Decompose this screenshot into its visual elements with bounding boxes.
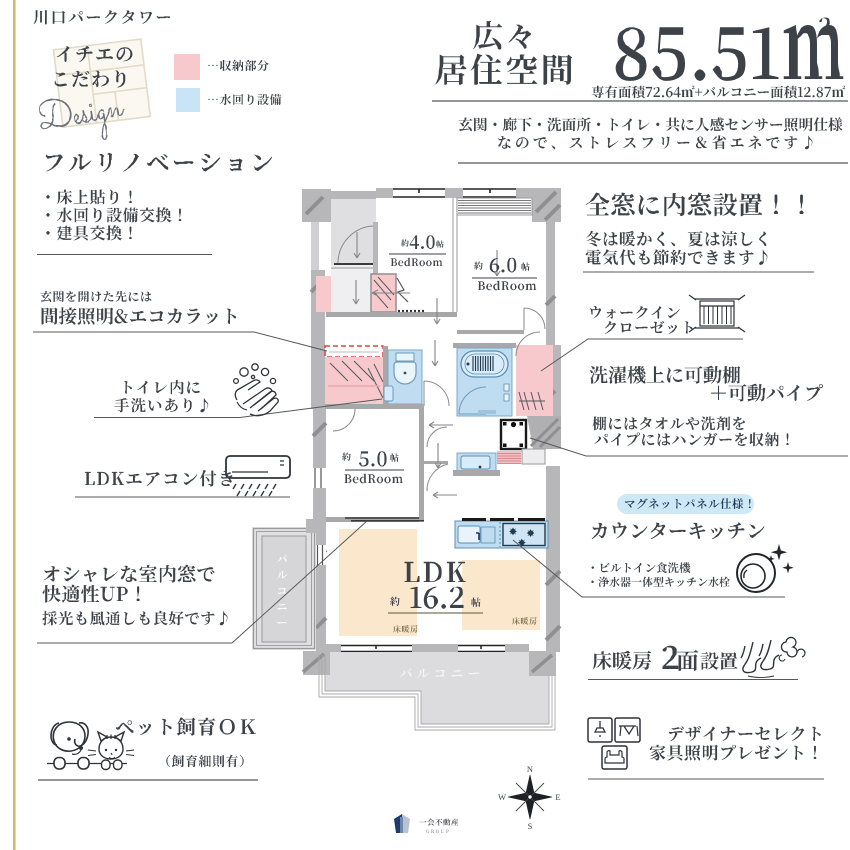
svg-text:N: N: [527, 764, 533, 774]
svg-text:S: S: [528, 821, 533, 831]
svg-text:E: E: [555, 792, 560, 802]
svg-text:W: W: [498, 792, 506, 802]
